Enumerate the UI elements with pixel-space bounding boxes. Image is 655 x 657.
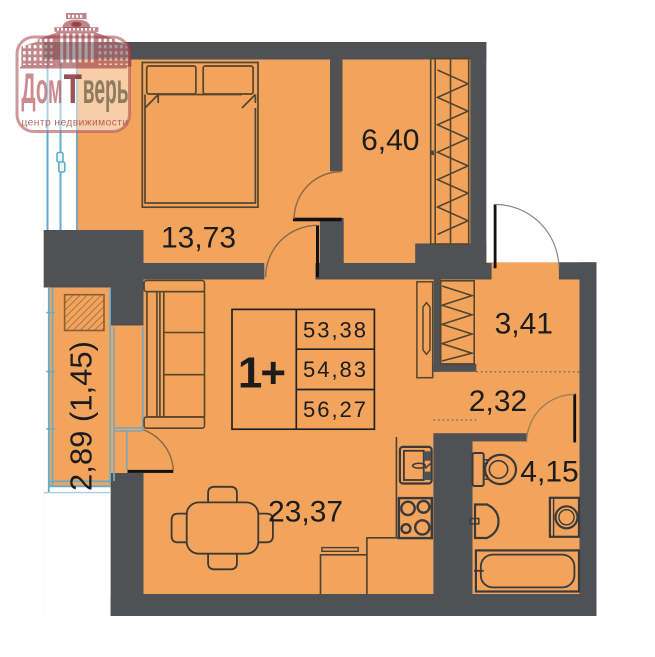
svg-text:Дом: Дом [21,66,62,113]
svg-text:13,73: 13,73 [161,222,236,255]
svg-text:54,83: 54,83 [303,357,368,382]
svg-text:4,15: 4,15 [520,456,578,489]
svg-text:центр недвижимости: центр недвижимости [22,118,129,129]
svg-text:3,41: 3,41 [495,308,553,341]
svg-text:верь: верь [83,66,129,114]
svg-text:2,32: 2,32 [469,385,527,418]
svg-text:6,40: 6,40 [361,124,419,157]
svg-text:53,38: 53,38 [303,318,368,343]
svg-text:Т: Т [64,65,82,112]
svg-text:23,37: 23,37 [268,496,343,529]
svg-text:2,89 (1,45): 2,89 (1,45) [64,341,99,491]
svg-text:56,27: 56,27 [303,397,368,422]
svg-text:1+: 1+ [238,349,284,398]
